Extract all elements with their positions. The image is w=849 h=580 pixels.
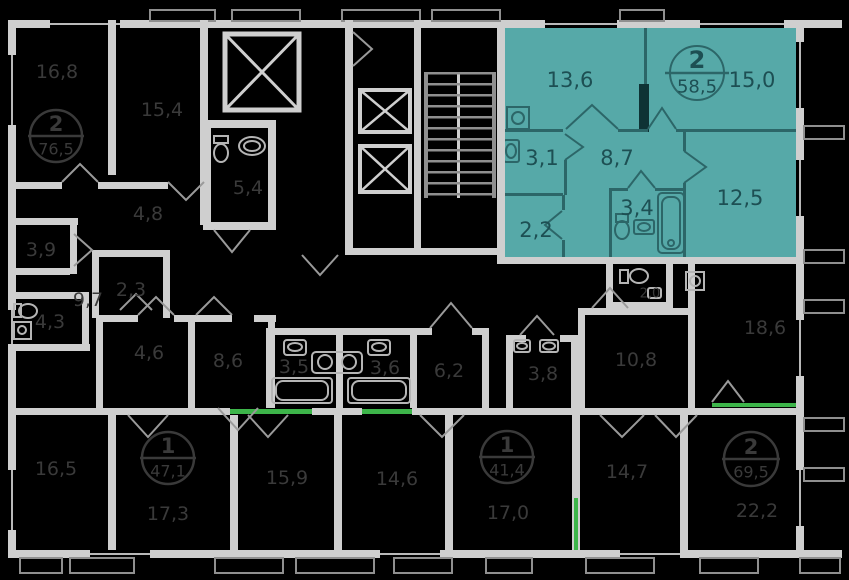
room-area-label: 4,8	[133, 203, 163, 225]
floor-plan: 13,6 15,0 8,7 3,1 2,2 3,4 12,5 2 58,5	[0, 0, 849, 580]
room-area-label: 22,2	[736, 500, 778, 522]
room-area-label: 6,2	[434, 360, 464, 382]
room-area-label: 14,6	[376, 468, 418, 490]
bathtub-icon	[272, 378, 332, 403]
elevator-icon	[360, 146, 410, 192]
badge-total-area: 47,1	[150, 462, 186, 481]
room-area-label: 4,3	[35, 311, 65, 333]
room-area-label: 10,8	[615, 349, 657, 371]
room-area-label: 3,1	[525, 146, 558, 170]
badge-room-count: 1	[500, 433, 515, 457]
badge-total-area: 69,5	[733, 463, 769, 482]
floor-plan-svg: 13,6 15,0 8,7 3,1 2,2 3,4 12,5 2 58,5	[0, 0, 849, 580]
washbasin-icon	[540, 340, 558, 352]
unit-badge-69[interactable]: 2 69,5	[722, 432, 780, 486]
room-area-label: 15,0	[729, 68, 776, 92]
room-area-label: 2,2	[519, 218, 552, 242]
washing-machine-icon	[14, 322, 31, 339]
bathtub-icon	[348, 378, 410, 403]
unit-badge-76[interactable]: 2 76,5	[28, 110, 84, 162]
stairs-icon	[424, 72, 496, 198]
washbasin-icon	[284, 340, 306, 355]
room-area-label: 2,0	[640, 287, 661, 302]
room-area-label: 3,5	[279, 356, 309, 378]
room-area-label: 2,3	[116, 279, 146, 301]
badge-room-count: 1	[161, 434, 176, 458]
room-area-label: 17,0	[487, 502, 529, 524]
unit-badge-47[interactable]: 1 47,1	[140, 432, 196, 484]
washbasin-icon	[368, 340, 390, 355]
elevator-icon	[225, 34, 299, 110]
selected-apartment-unit[interactable]: 13,6 15,0 8,7 3,1 2,2 3,4 12,5 2 58,5	[504, 28, 796, 264]
room-area-label: 9,7	[73, 289, 103, 311]
elevator-icon	[360, 90, 410, 132]
room-area-label: 4,6	[134, 342, 164, 364]
washbasin-icon	[239, 137, 265, 155]
badge-room-count: 2	[49, 112, 64, 136]
room-area-label: 3,6	[370, 357, 400, 379]
room-area-label: 3,8	[528, 363, 558, 385]
badge-total-area: 58,5	[677, 77, 717, 98]
badge-total-area: 76,5	[38, 140, 74, 159]
room-area-label: 14,7	[606, 461, 648, 483]
toilet-icon	[214, 136, 228, 162]
room-area-label: 5,4	[233, 177, 263, 199]
badge-total-area: 41,4	[489, 461, 525, 480]
badge-room-count: 2	[744, 435, 759, 459]
toilet-icon	[620, 269, 648, 283]
room-area-label: 17,3	[147, 503, 189, 525]
toilet-icon	[14, 304, 37, 318]
room-area-label: 18,6	[744, 317, 786, 339]
room-area-label: 13,6	[547, 68, 594, 92]
room-area-label: 15,4	[141, 99, 183, 121]
room-area-label: 16,8	[36, 61, 78, 83]
unit-badge-41[interactable]: 1 41,4	[479, 431, 535, 483]
room-area-label: 3,9	[26, 239, 56, 261]
room-area-label: 15,9	[266, 467, 308, 489]
badge-room-count: 2	[689, 46, 706, 74]
room-area-label: 12,5	[717, 186, 764, 210]
room-area-label: 16,5	[35, 458, 77, 480]
room-area-label: 8,6	[213, 350, 243, 372]
room-area-label: 8,7	[600, 146, 633, 170]
room-area-label: 3,4	[620, 196, 653, 220]
